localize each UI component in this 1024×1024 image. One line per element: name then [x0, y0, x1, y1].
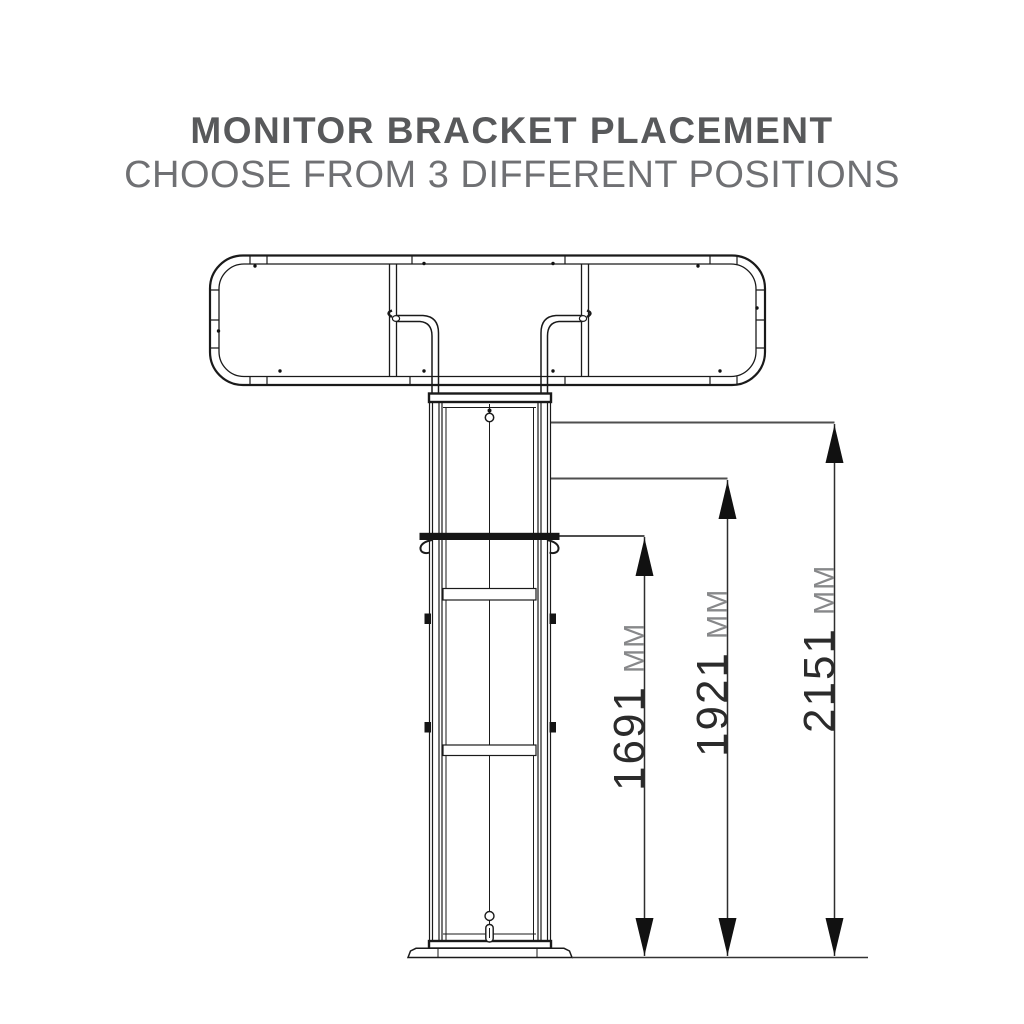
- column-panel-seams: [446, 404, 534, 941]
- right-arm-joint: [579, 316, 586, 322]
- column-cross-band-upper: [443, 589, 536, 601]
- arrow-down-2151: [826, 918, 844, 956]
- arrow-down-1691: [636, 918, 654, 956]
- upright-column: [425, 394, 557, 949]
- dimension-unit-1921: MM: [702, 589, 734, 639]
- dimension-value-2151: 2151: [795, 627, 844, 733]
- bracket-left-hook: [420, 540, 432, 553]
- arrow-up-1691: [636, 538, 654, 576]
- cable-top-ring: [485, 413, 493, 421]
- dimension-unit-1691: MM: [619, 623, 651, 673]
- dimension-1691: 1691 MM: [560, 536, 655, 956]
- left-arm-joint: [392, 316, 399, 322]
- turnbuckle-ring: [485, 912, 494, 921]
- arrow-up-2151: [826, 425, 844, 463]
- bracket-bar: [420, 533, 560, 540]
- column-top-bar: [429, 394, 551, 403]
- column-cross-band-lower: [443, 745, 536, 756]
- monitor-stand-technical-drawing: 2151 MM 1921 MM 1691 MM: [0, 0, 1024, 1024]
- dimension-value-1691: 1691: [605, 685, 654, 791]
- bracket-right-hook: [547, 540, 559, 553]
- dimension-unit-2151: MM: [809, 565, 841, 615]
- base-plate-outline: [408, 948, 572, 957]
- cable-top-pin: [488, 409, 492, 413]
- arrow-up-1921: [719, 481, 737, 519]
- header-frame: [210, 256, 765, 386]
- header-frame-outer-tube: [210, 256, 765, 386]
- arrow-down-1921: [719, 918, 737, 956]
- page: MONITOR BRACKET PLACEMENT CHOOSE FROM 3 …: [0, 0, 1024, 1024]
- base-plate: [408, 948, 572, 957]
- column-side-clips: [425, 614, 557, 733]
- dimension-value-1921: 1921: [688, 651, 737, 757]
